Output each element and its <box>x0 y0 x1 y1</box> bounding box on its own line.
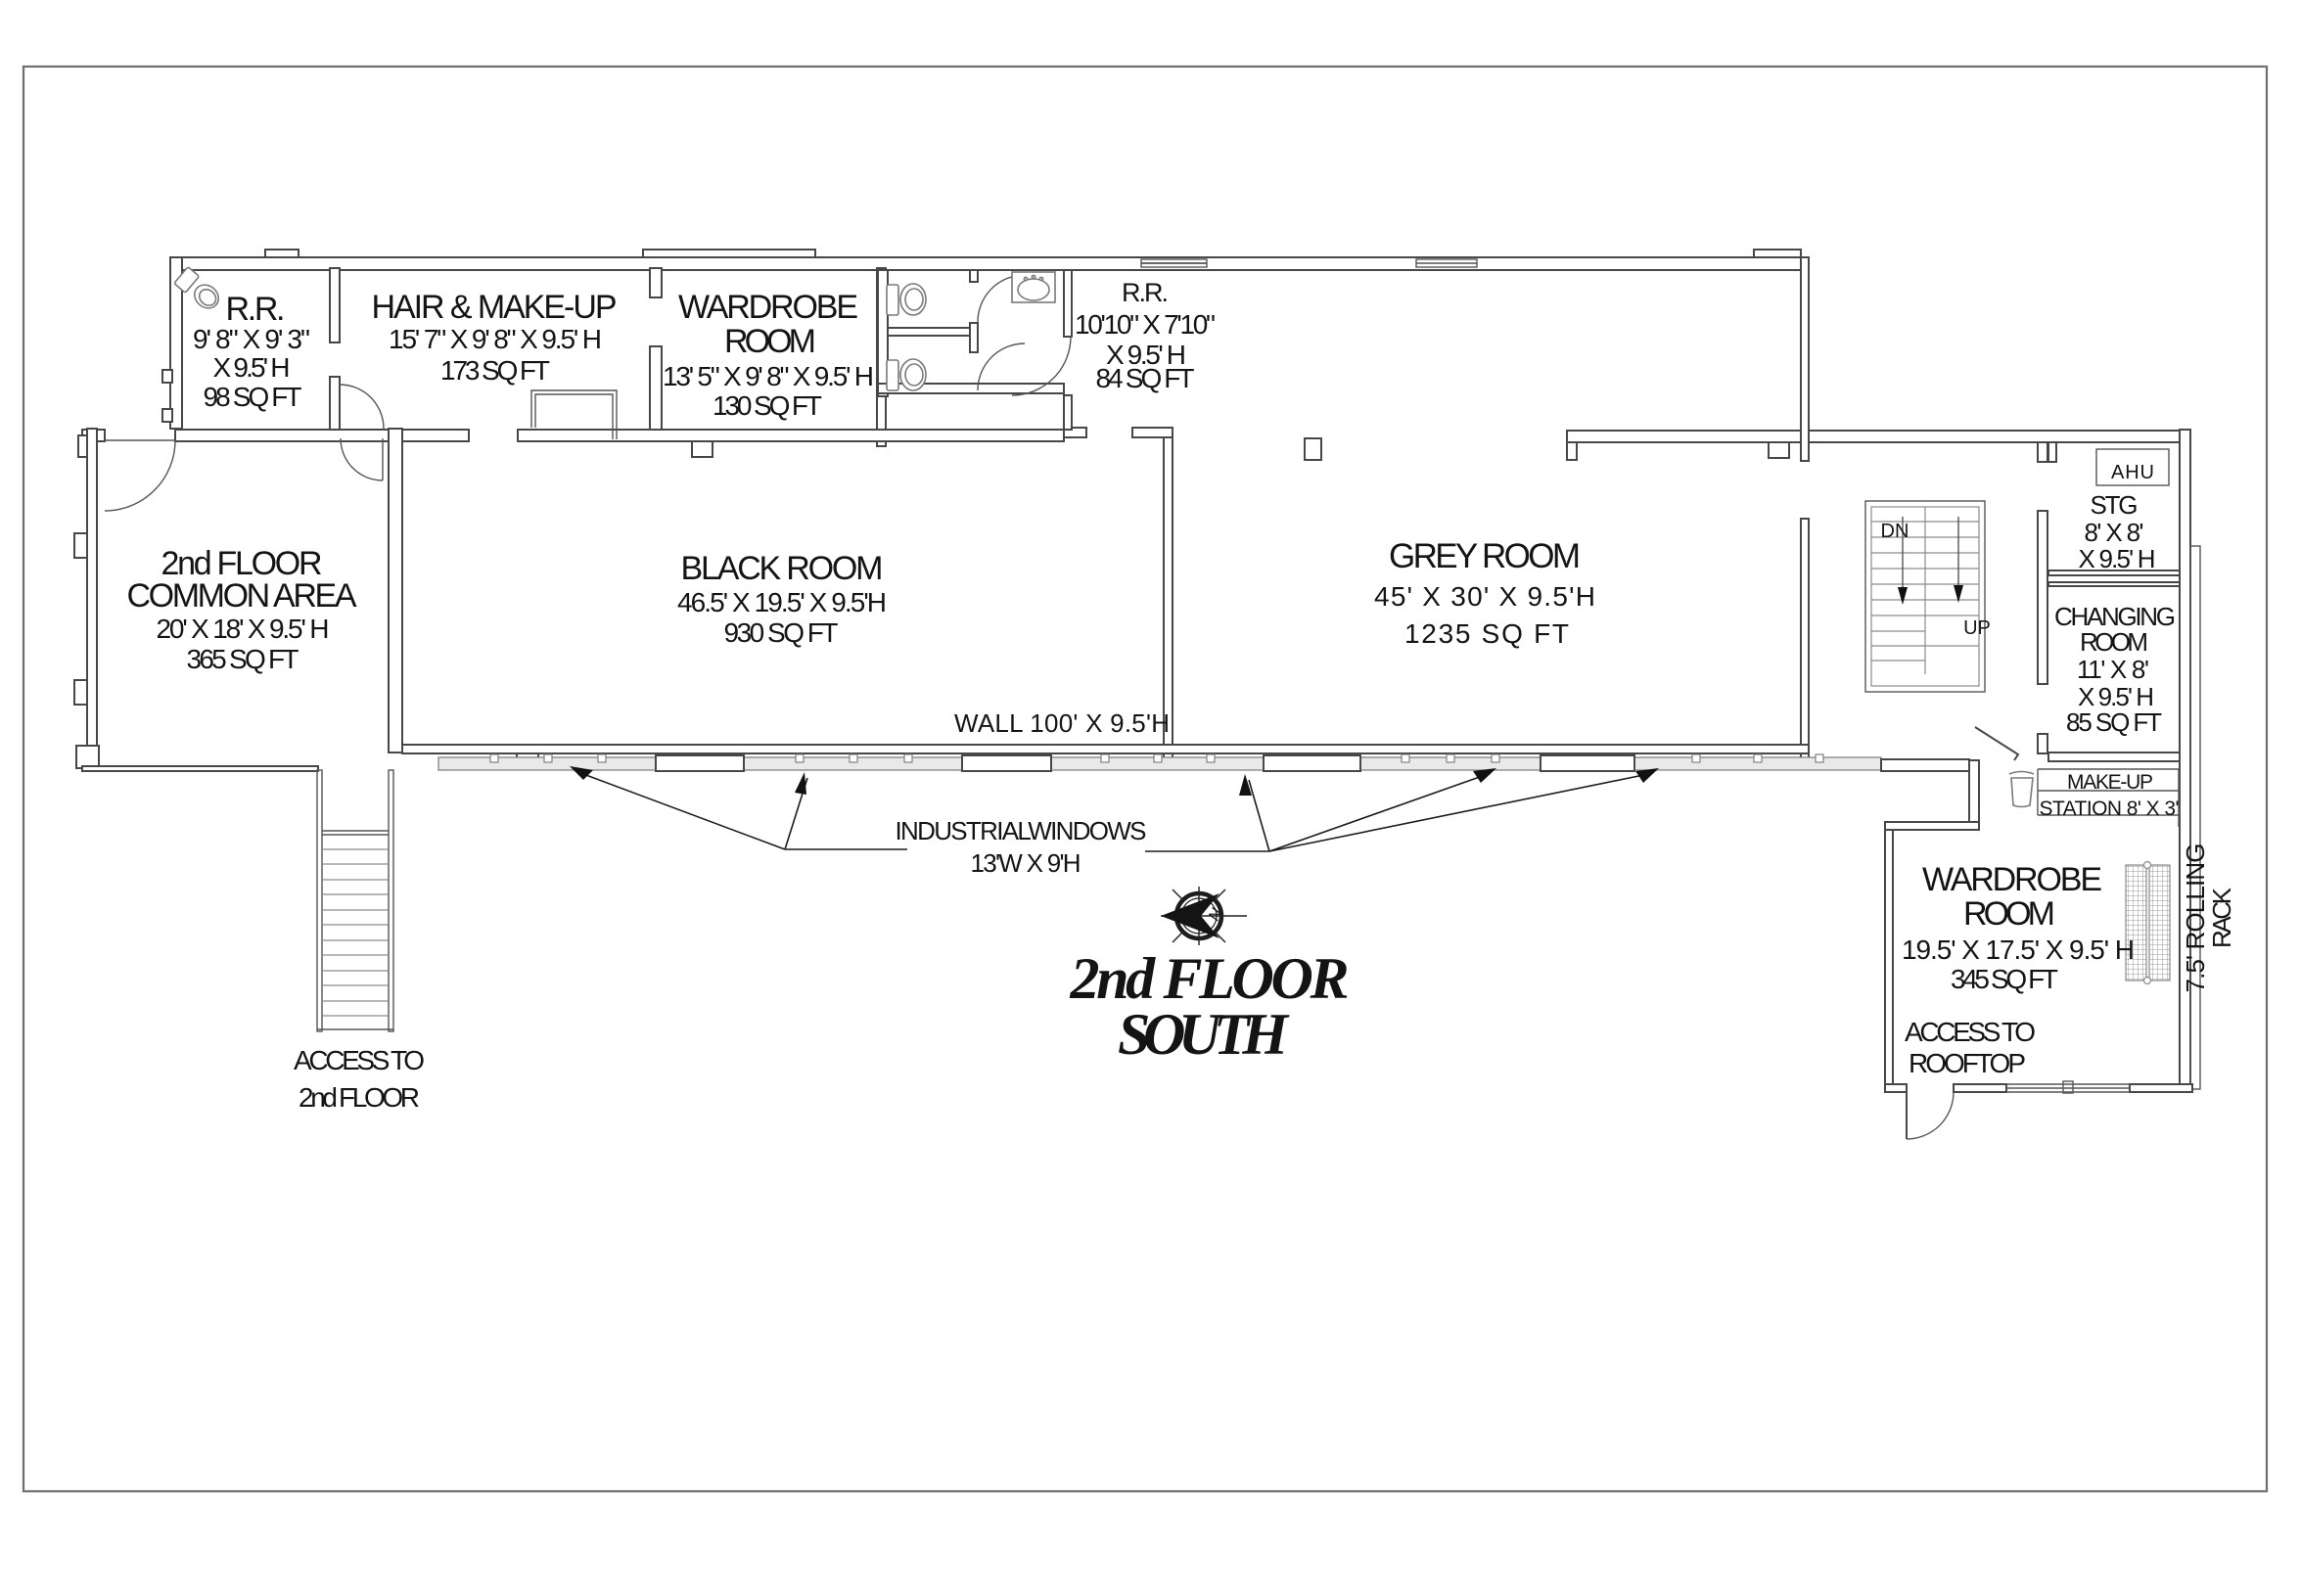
svg-text:130 SQ FT: 130 SQ FT <box>713 390 822 421</box>
svg-text:WARDROBE: WARDROBE <box>678 289 858 326</box>
svg-text:STG: STG <box>2091 490 2139 520</box>
svg-text:98 SQ FT: 98 SQ FT <box>204 382 302 412</box>
svg-text:7.5' ROLLING: 7.5' ROLLING <box>2181 844 2210 993</box>
svg-text:R.R.: R.R. <box>226 291 286 328</box>
svg-text:COMMON AREA: COMMON AREA <box>127 577 357 615</box>
svg-text:ACCESS TO: ACCESS TO <box>294 1045 425 1075</box>
svg-text:10'10" X 7'10": 10'10" X 7'10" <box>1075 309 1216 340</box>
svg-text:1235 SQ FT: 1235 SQ FT <box>1404 618 1569 649</box>
svg-text:11' X 8': 11' X 8' <box>2077 655 2149 684</box>
svg-text:15' 7" X 9' 8" X 9.5' H: 15' 7" X 9' 8" X 9.5' H <box>389 324 602 354</box>
svg-text:X 9.5' H: X 9.5' H <box>2079 544 2156 573</box>
svg-text:HAIR & MAKE-UP: HAIR & MAKE-UP <box>372 289 618 326</box>
svg-text:2nd FLOOR: 2nd FLOOR <box>299 1082 420 1113</box>
svg-text:930 SQ FT: 930 SQ FT <box>724 617 839 648</box>
svg-text:345 SQ FT: 345 SQ FT <box>1951 964 2058 994</box>
svg-text:MAKE-UP: MAKE-UP <box>2067 771 2153 794</box>
svg-text:20' X 18' X 9.5' H: 20' X 18' X 9.5' H <box>157 614 330 644</box>
svg-text:173 SQ FT: 173 SQ FT <box>440 355 550 386</box>
svg-text:ROOM: ROOM <box>1963 895 2055 933</box>
svg-text:19.5' X 17.5' X 9.5' H: 19.5' X 17.5' X 9.5' H <box>1902 935 2135 965</box>
svg-text:365 SQ FT: 365 SQ FT <box>187 644 299 674</box>
svg-text:ROOFTOP: ROOFTOP <box>1909 1048 2026 1078</box>
svg-text:GREY ROOM: GREY ROOM <box>1389 537 1581 575</box>
svg-text:85 SQ FT: 85 SQ FT <box>2066 707 2162 737</box>
svg-text:UP: UP <box>1963 617 1991 639</box>
svg-text:ACCESS TO: ACCESS TO <box>1905 1017 2036 1047</box>
svg-text:SOUTH: SOUTH <box>1118 1002 1290 1067</box>
svg-text:45' X 30' X 9.5'H: 45' X 30' X 9.5'H <box>1374 581 1595 612</box>
svg-text:DN: DN <box>1881 521 1909 542</box>
svg-text:WALL 100' X 9.5'H: WALL 100' X 9.5'H <box>954 708 1170 738</box>
svg-text:46.5' X 19.5' X 9.5'H: 46.5' X 19.5' X 9.5'H <box>677 587 887 617</box>
svg-text:AHU: AHU <box>2111 462 2154 483</box>
svg-text:84 SQ FT: 84 SQ FT <box>1096 363 1195 393</box>
svg-text:BLACK ROOM: BLACK ROOM <box>681 550 884 587</box>
svg-text:INDUSTRIALWINDOWS: INDUSTRIALWINDOWS <box>896 816 1147 845</box>
svg-text:X 9.5' H: X 9.5' H <box>213 352 291 383</box>
svg-text:13'W X 9'H: 13'W X 9'H <box>971 848 1081 878</box>
svg-text:RACK: RACK <box>2207 887 2236 948</box>
svg-text:9' 8" X 9' 3": 9' 8" X 9' 3" <box>193 324 310 354</box>
svg-text:13' 5" X 9' 8" X 9.5' H: 13' 5" X 9' 8" X 9.5' H <box>663 361 874 391</box>
svg-text:STATION 8' X 3': STATION 8' X 3' <box>2040 798 2180 820</box>
svg-text:ROOM: ROOM <box>724 323 816 360</box>
svg-text:R.R.: R.R. <box>1122 278 1169 307</box>
svg-text:ROOM: ROOM <box>2080 627 2148 657</box>
svg-text:8' X 8': 8' X 8' <box>2085 518 2144 547</box>
svg-text:WARDROBE: WARDROBE <box>1922 861 2102 898</box>
